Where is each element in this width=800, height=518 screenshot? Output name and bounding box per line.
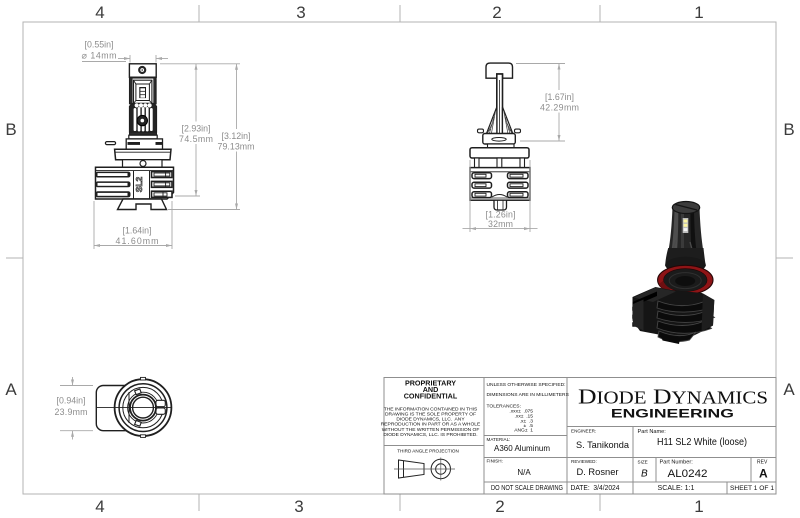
- svg-text:.xx± .15: .xx± .15: [515, 414, 534, 420]
- svg-text:ENGINEER:: ENGINEER:: [571, 429, 596, 434]
- svg-text:2: 2: [495, 497, 504, 516]
- svg-text:DIMENSIONS ARE IN MILLIMETERS: DIMENSIONS ARE IN MILLIMETERS: [487, 392, 570, 398]
- svg-text:SCALE: 1:1: SCALE: 1:1: [658, 483, 695, 492]
- svg-text:A360 Aluminum: A360 Aluminum: [494, 444, 550, 453]
- svg-text:1: 1: [694, 497, 703, 516]
- svg-text:ANG± 1: ANG± 1: [514, 428, 533, 434]
- svg-text:Part Number:: Part Number:: [660, 460, 694, 466]
- svg-text:2: 2: [492, 3, 501, 22]
- svg-text:DIODE DYNAMICS, LLC. IS PROHIB: DIODE DYNAMICS, LLC. IS PROHIBITED.: [383, 432, 477, 438]
- svg-text:ENGINEERING: ENGINEERING: [611, 409, 734, 421]
- svg-text:D. Rosner: D. Rosner: [577, 467, 619, 478]
- svg-text:B: B: [783, 120, 794, 139]
- svg-text:.xxx± .075: .xxx± .075: [509, 409, 533, 415]
- svg-text:74.5mm: 74.5mm: [179, 134, 213, 144]
- svg-text:A: A: [5, 380, 17, 399]
- svg-text:THE INFORMATION CONTAINED IN T: THE INFORMATION CONTAINED IN THIS: [384, 406, 478, 412]
- svg-text:FINISH:: FINISH:: [487, 459, 503, 464]
- svg-text:AL0242: AL0242: [668, 468, 708, 480]
- svg-text:SHEET 1 OF 1: SHEET 1 OF 1: [730, 485, 774, 492]
- svg-text:.x± .3: .x± .3: [520, 418, 534, 424]
- svg-text:TOLERANCES:: TOLERANCES:: [487, 404, 521, 410]
- svg-text:[3.12in]: [3.12in]: [222, 131, 251, 141]
- svg-text:3: 3: [294, 497, 303, 516]
- svg-text:DO NOT SCALE DRAWING: DO NOT SCALE DRAWING: [491, 483, 563, 492]
- svg-text:UNLESS OTHERWISE SPECIFIED:: UNLESS OTHERWISE SPECIFIED:: [487, 382, 566, 388]
- svg-text:[2.93in]: [2.93in]: [182, 124, 211, 134]
- svg-text:⌀ 14mm: ⌀ 14mm: [82, 51, 117, 61]
- svg-text:H11 SL2 White (loose): H11 SL2 White (loose): [657, 436, 747, 448]
- svg-text:Part Name:: Part Name:: [638, 429, 667, 435]
- svg-text:23.9mm: 23.9mm: [55, 407, 88, 417]
- svg-text:± .5: ± .5: [524, 423, 534, 429]
- svg-text:[0.55in]: [0.55in]: [85, 40, 114, 50]
- svg-text:REV: REV: [757, 460, 768, 466]
- svg-text:42.29mm: 42.29mm: [540, 103, 579, 113]
- svg-text:41.60mm: 41.60mm: [116, 236, 159, 246]
- svg-text:THIRD ANGLE PROJECTION: THIRD ANGLE PROJECTION: [397, 449, 459, 454]
- svg-text:MATERIAL:: MATERIAL:: [487, 437, 511, 442]
- svg-text:SIZE: SIZE: [638, 460, 648, 465]
- svg-text:79.13mm: 79.13mm: [218, 142, 255, 152]
- svg-text:4: 4: [95, 3, 104, 22]
- svg-text:N/A: N/A: [517, 468, 531, 477]
- svg-text:[1.64in]: [1.64in]: [123, 226, 152, 236]
- svg-text:B: B: [5, 120, 16, 139]
- svg-text:A: A: [759, 467, 768, 481]
- svg-text:DIODE DYNAMICS: DIODE DYNAMICS: [578, 385, 768, 409]
- svg-text:1: 1: [694, 3, 703, 22]
- svg-text:DIODE DYNAMICS, LLC. ANY: DIODE DYNAMICS, LLC. ANY: [396, 417, 465, 423]
- svg-text:S. Tanikonda: S. Tanikonda: [576, 440, 630, 451]
- svg-text:32mm: 32mm: [488, 219, 513, 229]
- svg-text:CONFIDENTIAL: CONFIDENTIAL: [404, 392, 458, 401]
- svg-text:DRAWING IS THE SOLE PROPERTY O: DRAWING IS THE SOLE PROPERTY OF: [385, 411, 476, 417]
- svg-text:SL2: SL2: [134, 176, 144, 192]
- svg-text:[1.67in]: [1.67in]: [545, 92, 574, 102]
- svg-text:REPRODUCTION IN PART OR AS A W: REPRODUCTION IN PART OR AS A WHOLE: [381, 422, 481, 428]
- svg-text:[0.94in]: [0.94in]: [57, 396, 86, 406]
- svg-text:4: 4: [95, 497, 104, 516]
- svg-text:WITHOUT THE WRITTEN PERMISSION: WITHOUT THE WRITTEN PERMISSION OF: [382, 427, 480, 433]
- svg-text:[1.26in]: [1.26in]: [486, 210, 516, 220]
- svg-text:DATE: 3/4/2024: DATE: 3/4/2024: [571, 483, 620, 492]
- svg-text:B: B: [641, 469, 648, 480]
- svg-text:A: A: [783, 380, 795, 399]
- svg-text:REVIEWED:: REVIEWED:: [571, 459, 597, 464]
- svg-text:3: 3: [296, 3, 305, 22]
